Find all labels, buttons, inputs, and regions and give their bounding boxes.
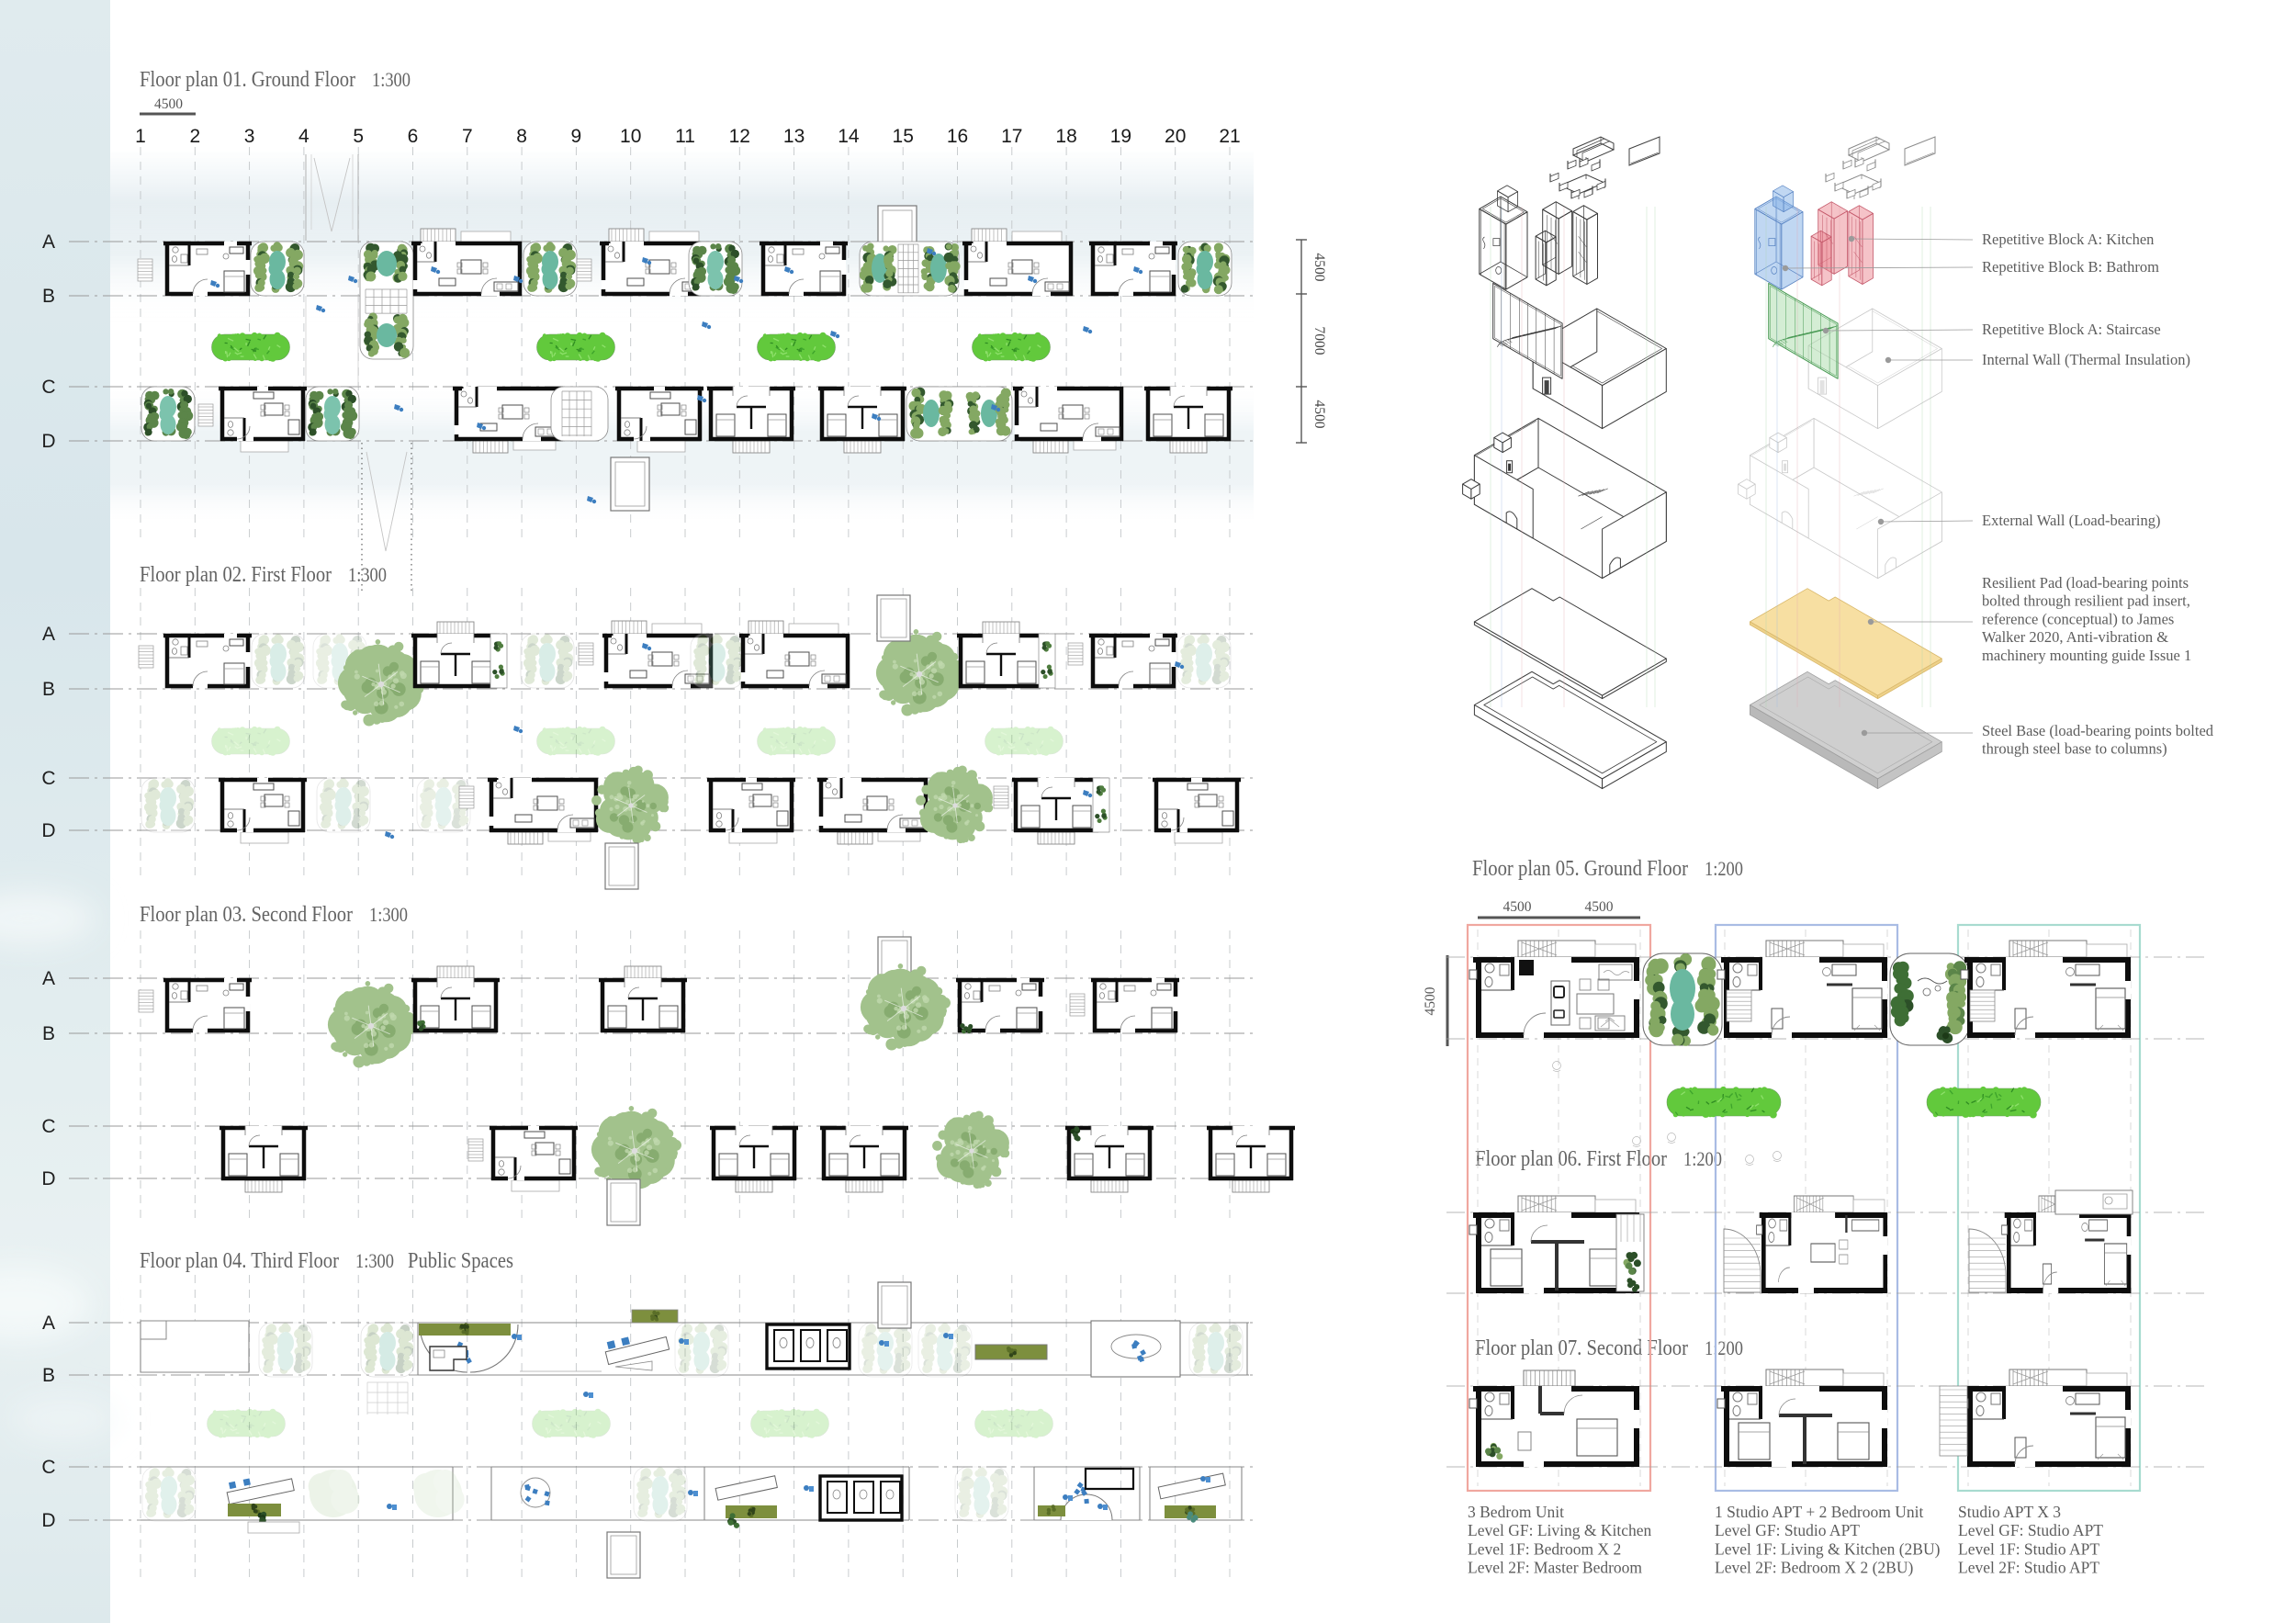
svg-text:15: 15 — [893, 126, 914, 147]
svg-text:4500: 4500 — [1503, 899, 1532, 915]
svg-text:1:300: 1:300 — [348, 563, 387, 586]
svg-text:A: A — [42, 231, 55, 253]
svg-text:12: 12 — [729, 126, 750, 147]
svg-text:B: B — [42, 1023, 55, 1044]
svg-text:Level 2F: Bedroom X 2 (2BU): Level 2F: Bedroom X 2 (2BU) — [1715, 1559, 1913, 1577]
svg-text:5: 5 — [353, 126, 364, 147]
svg-text:16: 16 — [947, 126, 968, 147]
svg-text:1:200: 1:200 — [1705, 1336, 1743, 1359]
svg-text:9: 9 — [571, 126, 582, 147]
svg-text:6: 6 — [408, 126, 419, 147]
svg-text:Floor plan 05. Ground Floor: Floor plan 05. Ground Floor — [1472, 857, 1688, 881]
svg-text:A: A — [42, 624, 55, 645]
svg-text:machinery mounting guide Issue: machinery mounting guide Issue 1 — [1982, 647, 2191, 664]
svg-text:Floor plan 06. First Floor: Floor plan 06. First Floor — [1475, 1147, 1667, 1171]
svg-text:C: C — [41, 1457, 55, 1478]
svg-text:Repetitive Block A: Staircase: Repetitive Block A: Staircase — [1982, 321, 2161, 338]
svg-text:4500: 4500 — [1311, 254, 1327, 282]
svg-text:8: 8 — [516, 126, 527, 147]
svg-text:Level 2F: Master Bedroom: Level 2F: Master Bedroom — [1468, 1559, 1642, 1577]
svg-text:Resilient Pad (load-bearing po: Resilient Pad (load-bearing points — [1982, 574, 2189, 592]
svg-text:1:300: 1:300 — [369, 903, 408, 926]
svg-text:A: A — [42, 968, 55, 989]
svg-text:Repetitive Block B: Bathrom: Repetitive Block B: Bathrom — [1982, 258, 2159, 276]
svg-text:D: D — [41, 431, 55, 452]
svg-text:Level GF: Studio APT: Level GF: Studio APT — [1958, 1521, 2103, 1539]
svg-text:A: A — [42, 1313, 55, 1334]
svg-text:18: 18 — [1055, 126, 1076, 147]
svg-text:Level 1F: Bedroom X 2: Level 1F: Bedroom X 2 — [1468, 1539, 1621, 1558]
svg-text:3: 3 — [244, 126, 255, 147]
svg-text:1:200: 1:200 — [1705, 857, 1743, 880]
svg-text:C: C — [41, 768, 55, 789]
svg-text:reference (conceptual) to Jame: reference (conceptual) to James — [1982, 610, 2174, 627]
svg-text:17: 17 — [1001, 126, 1022, 147]
svg-text:Level 1F: Living & Kitchen (2B: Level 1F: Living & Kitchen (2BU) — [1715, 1539, 1941, 1558]
svg-text:D: D — [41, 1168, 55, 1189]
svg-text:1:300: 1:300 — [372, 68, 411, 91]
svg-text:4500: 4500 — [154, 96, 183, 112]
svg-text:Steel Base (load-bearing point: Steel Base (load-bearing points bolted — [1982, 722, 2214, 739]
svg-text:Floor plan 04. Third Floor: Floor plan 04. Third Floor — [140, 1249, 339, 1273]
svg-text:4: 4 — [298, 126, 310, 147]
svg-text:Walker 2020, Anti-vibration &: Walker 2020, Anti-vibration & — [1982, 628, 2168, 646]
svg-text:4500: 4500 — [1423, 986, 1438, 1015]
svg-text:bolted through resilient pad i: bolted through resilient pad insert, — [1982, 592, 2190, 610]
svg-text:11: 11 — [675, 126, 695, 147]
svg-text:Level 2F: Studio APT: Level 2F: Studio APT — [1958, 1559, 2099, 1577]
svg-text:Repetitive Block A: Kitchen: Repetitive Block A: Kitchen — [1982, 231, 2154, 248]
svg-text:B: B — [42, 679, 55, 700]
svg-text:D: D — [41, 1510, 55, 1531]
svg-text:Floor plan 07. Second Floor: Floor plan 07. Second Floor — [1475, 1336, 1688, 1360]
svg-text:Level GF: Studio APT: Level GF: Studio APT — [1715, 1521, 1860, 1539]
svg-text:4500: 4500 — [1585, 899, 1614, 915]
svg-text:21: 21 — [1219, 126, 1240, 147]
svg-text:Studio APT X 3: Studio APT X 3 — [1958, 1503, 2061, 1521]
svg-text:Floor plan 02. First Floor: Floor plan 02. First Floor — [140, 563, 332, 587]
svg-text:Level 1F: Studio APT: Level 1F: Studio APT — [1958, 1539, 2099, 1558]
svg-text:19: 19 — [1110, 126, 1131, 147]
svg-text:3 Bedrom Unit: 3 Bedrom Unit — [1468, 1503, 1564, 1521]
svg-text:14: 14 — [838, 126, 860, 147]
svg-text:Floor plan 01. Ground Floor: Floor plan 01. Ground Floor — [140, 68, 355, 92]
svg-text:Public Spaces: Public Spaces — [408, 1249, 513, 1273]
svg-text:through steel base to columns): through steel base to columns) — [1982, 740, 2167, 758]
svg-text:20: 20 — [1165, 126, 1186, 147]
svg-text:B: B — [42, 1365, 55, 1386]
svg-text:B: B — [42, 286, 55, 307]
svg-text:4500: 4500 — [1311, 400, 1327, 429]
svg-text:D: D — [41, 820, 55, 841]
svg-text:2: 2 — [189, 126, 200, 147]
svg-text:1 Studio APT + 2 Bedroom Unit: 1 Studio APT + 2 Bedroom Unit — [1715, 1503, 1923, 1521]
svg-text:1:300: 1:300 — [355, 1249, 394, 1272]
svg-text:7: 7 — [462, 126, 473, 147]
svg-text:External Wall (Load-bearing): External Wall (Load-bearing) — [1982, 512, 2160, 529]
svg-text:Internal Wall (Thermal Insulat: Internal Wall (Thermal Insulation) — [1982, 351, 2190, 368]
svg-text:Floor plan 03. Second Floor: Floor plan 03. Second Floor — [140, 903, 353, 927]
svg-text:C: C — [41, 1116, 55, 1137]
svg-text:Level GF: Living & Kitchen: Level GF: Living & Kitchen — [1468, 1521, 1651, 1539]
svg-text:13: 13 — [783, 126, 805, 147]
svg-text:7000: 7000 — [1311, 327, 1327, 355]
svg-text:C: C — [41, 377, 55, 398]
svg-text:1: 1 — [135, 126, 146, 147]
svg-text:10: 10 — [620, 126, 641, 147]
